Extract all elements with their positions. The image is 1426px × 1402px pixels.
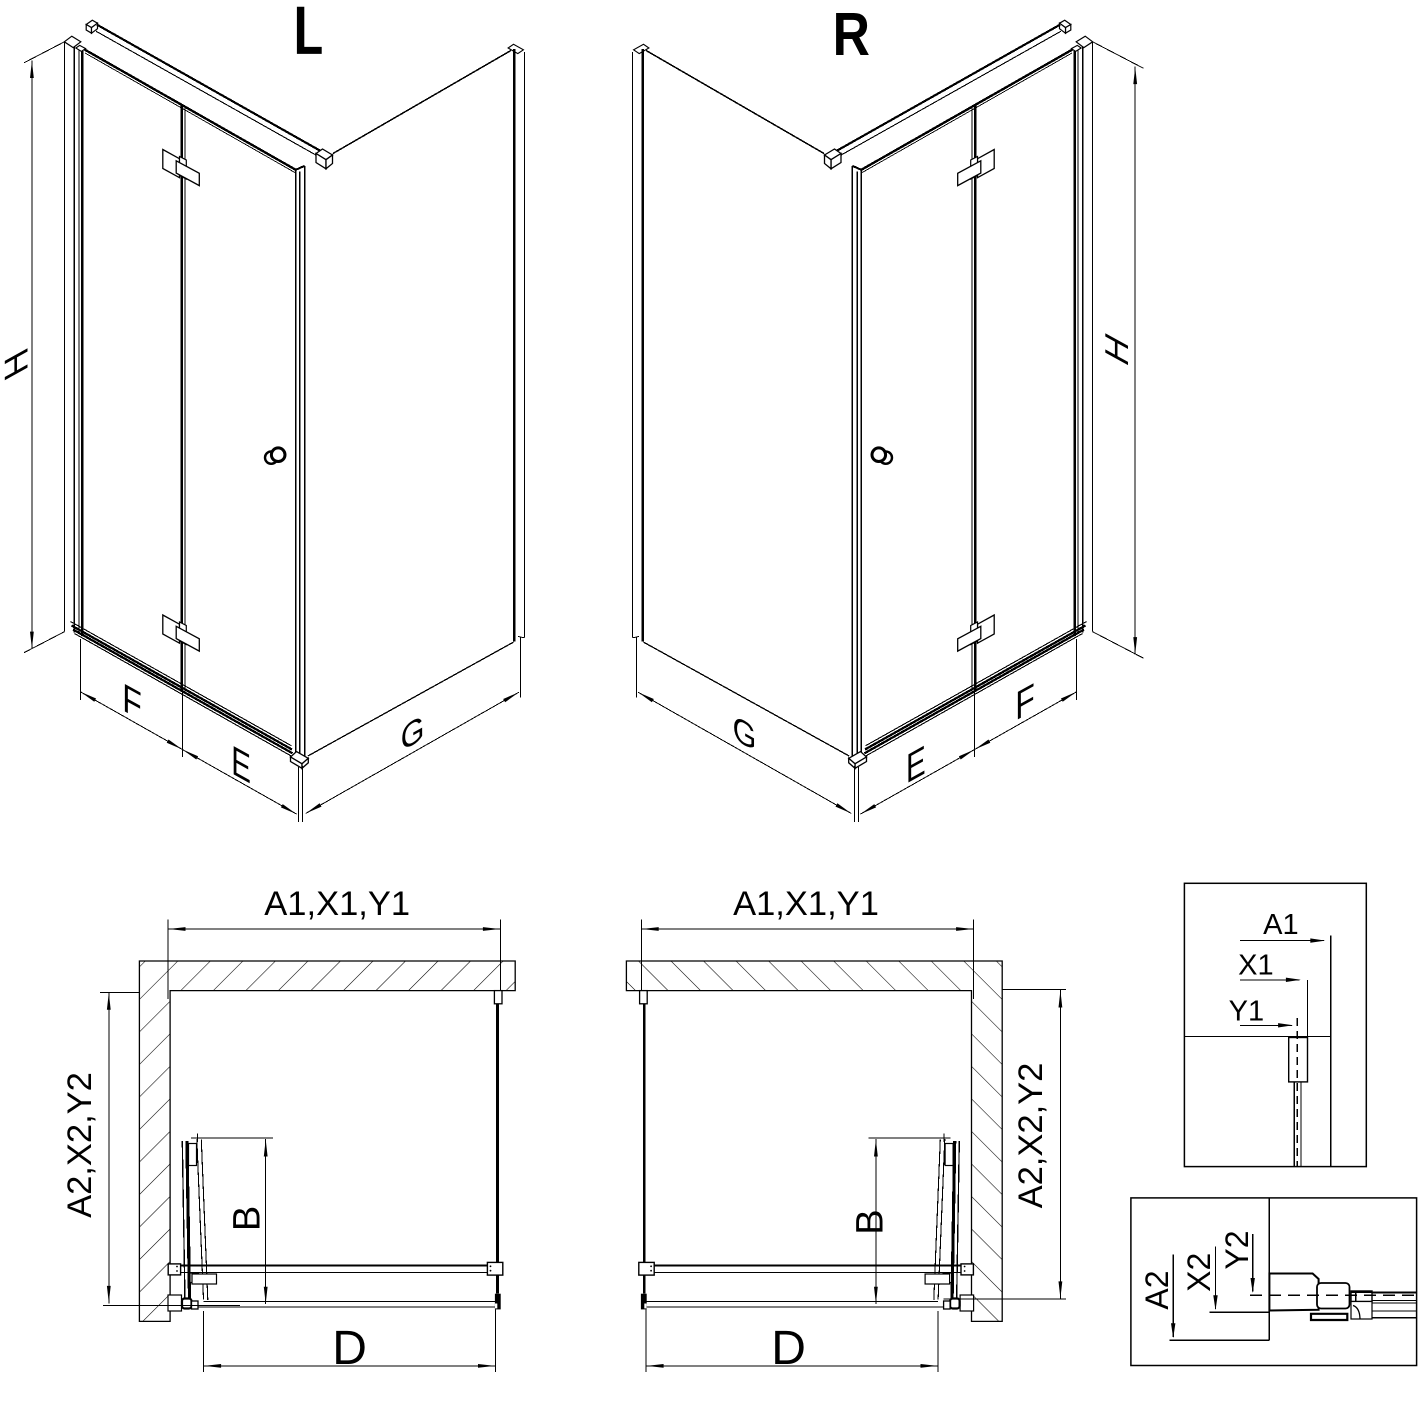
svg-text:X1: X1 xyxy=(1238,950,1273,982)
svg-text:D: D xyxy=(771,1322,806,1375)
svg-text:Y1: Y1 xyxy=(1229,996,1264,1028)
svg-text:X2: X2 xyxy=(1181,1253,1217,1292)
svg-text:Y2: Y2 xyxy=(1219,1230,1255,1269)
svg-text:R: R xyxy=(833,1,870,69)
svg-text:B: B xyxy=(850,1209,892,1234)
svg-text:D: D xyxy=(332,1322,367,1375)
svg-text:A1: A1 xyxy=(1263,909,1298,941)
svg-text:A2,X2,Y2: A2,X2,Y2 xyxy=(1012,1063,1050,1209)
svg-text:A1,X1,Y1: A1,X1,Y1 xyxy=(733,885,879,923)
svg-text:A1,X1,Y1: A1,X1,Y1 xyxy=(264,885,410,923)
svg-text:B: B xyxy=(227,1206,269,1231)
svg-text:A2,X2,Y2: A2,X2,Y2 xyxy=(61,1072,99,1218)
svg-text:A2: A2 xyxy=(1139,1270,1175,1309)
